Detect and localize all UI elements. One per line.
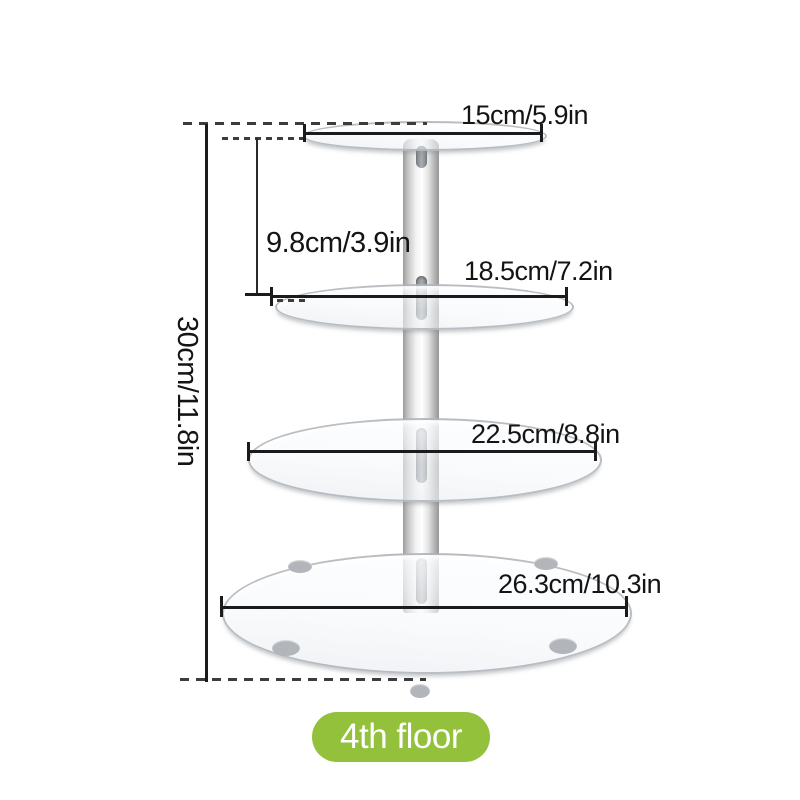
tier3-diameter-label: 22.5cm/8.8in bbox=[471, 420, 620, 450]
tier-spacing-label: 9.8cm/3.9in bbox=[266, 228, 410, 260]
total-height-label: 30cm/11.8in bbox=[170, 316, 202, 466]
tier-2-plate bbox=[275, 284, 574, 330]
tier2-diameter-line bbox=[272, 295, 568, 298]
cake-stand-dimension-diagram: 15cm/5.9in 18.5cm/7.2in 22.5cm/8.8in 26.… bbox=[0, 0, 800, 800]
tier1-diameter-line bbox=[305, 132, 542, 135]
base-foot-1 bbox=[288, 560, 312, 573]
height-extension-line-bottom bbox=[180, 678, 426, 681]
tier2-diameter-label: 18.5cm/7.2in bbox=[464, 257, 613, 287]
tier2-diameter-tick-left bbox=[270, 287, 273, 306]
spacing-extension-line-bottom bbox=[277, 299, 305, 302]
tier4-diameter-line bbox=[222, 606, 628, 609]
total-height-dimension-line bbox=[205, 124, 208, 682]
tier3-diameter-line bbox=[249, 450, 597, 453]
spacing-tick-bottom bbox=[245, 293, 272, 296]
tier1-diameter-tick-left bbox=[303, 124, 306, 142]
tier-spacing-dimension-line bbox=[256, 138, 258, 296]
base-foot-5 bbox=[410, 684, 430, 698]
tier4-diameter-tick-left bbox=[220, 596, 223, 617]
tier3-diameter-tick-left bbox=[247, 442, 250, 461]
base-foot-4 bbox=[549, 638, 577, 654]
spacing-extension-line-top bbox=[222, 137, 304, 140]
tier2-diameter-tick-right bbox=[565, 287, 568, 306]
stand-pole bbox=[403, 139, 439, 613]
tier4-diameter-label: 26.3cm/10.3in bbox=[498, 570, 661, 600]
tier1-diameter-label: 15cm/5.9in bbox=[461, 101, 588, 131]
tier-count-badge: 4th floor bbox=[312, 712, 490, 762]
base-foot-3 bbox=[272, 640, 300, 656]
